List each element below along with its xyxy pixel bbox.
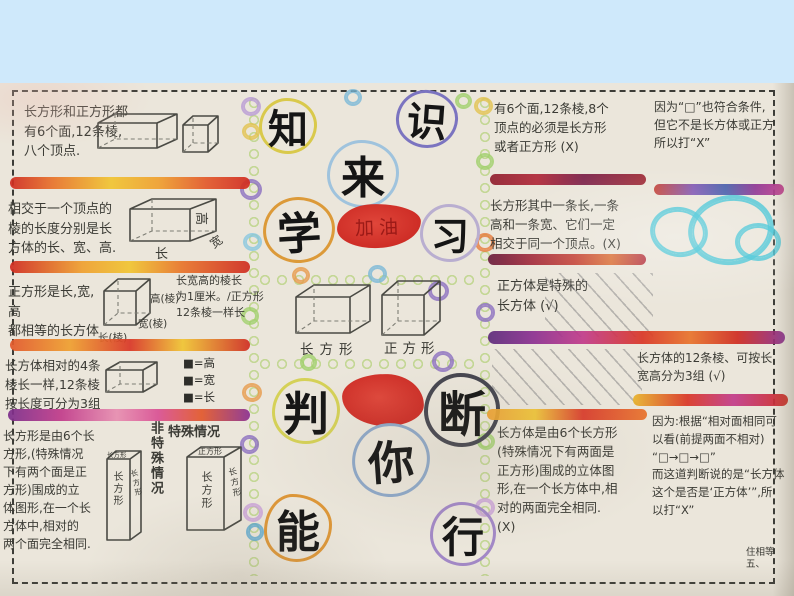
title-char-xing: 行 — [430, 502, 496, 566]
left-section2-text: 相交于一个顶点的 棱的长度分别是长 方体的长、宽、高. — [8, 200, 126, 259]
edge-label-length: 长 — [155, 243, 168, 262]
left-section3-text: 正方形是长,宽,高 都相等的长方体 — [8, 283, 104, 342]
judgment-4-text: 长方体的12条棱、可按长 宽高分为3组 (√) — [637, 349, 789, 385]
cube-edge-label-w: 宽(棱) — [138, 316, 167, 331]
crayon-divider — [633, 394, 788, 406]
crayon-divider — [8, 409, 250, 421]
scribble-decoration — [476, 153, 494, 170]
title-char-pan: 判 — [272, 378, 340, 444]
scribble-decoration — [241, 97, 261, 116]
title-char-lai: 来 — [327, 140, 399, 208]
poster-photo: 长方形和正方形都 有6个面,12条棱, 八个顶点. 相交于一个顶点的 棱的长度分… — [0, 83, 794, 596]
middle-box1-label: 长方形 — [300, 338, 359, 358]
crayon-divider — [488, 331, 785, 344]
face-label: 长方形 — [109, 471, 124, 507]
heading-non-special-case: 非特殊情况 — [146, 421, 165, 526]
slide: { "colors": { "slide_background": "#cfe9… — [0, 0, 794, 596]
edge-label-height: 高 — [193, 212, 212, 225]
judgment-2-text: 长方形其中一条长,一条 高和一条宽、它们一定 相交于同一个顶点。(X) — [490, 197, 652, 253]
scribble-decoration — [474, 97, 493, 115]
title-char-zhi: 知 — [259, 98, 317, 154]
crayon-divider — [10, 261, 250, 273]
corner-note: 住相等 五、 — [746, 547, 792, 572]
scribble-decoration — [455, 93, 472, 109]
scribble-decoration — [243, 233, 262, 251]
crayon-divider — [654, 184, 784, 195]
cuboid-sketch — [292, 281, 372, 337]
cube-sketch — [180, 113, 220, 155]
scribble-decoration — [242, 123, 260, 140]
crayon-divider — [10, 177, 250, 189]
crayon-divider — [488, 254, 646, 265]
pencil-hatching — [545, 273, 653, 337]
face-label: 长方形 — [198, 471, 214, 510]
scribble-decoration — [344, 89, 362, 106]
left-section4-text: 长方体相对的4条 棱长一样,12条棱 按长度可分为3组 — [5, 357, 107, 413]
pencil-hatching — [492, 349, 642, 405]
cuboid-sketch — [95, 111, 179, 151]
judgment-1-text: 有6个面,12条棱,8个 顶点的必须是长方形 或者正方形 (X) — [494, 100, 649, 156]
face-label: 正方形 — [198, 446, 222, 457]
face-label: 长方形 — [107, 449, 127, 459]
title-char-xi: 习 — [420, 204, 480, 262]
crayon-divider — [490, 174, 646, 185]
scribble-decoration — [243, 503, 263, 522]
judgment-5-text: 长方体是由6个长方形 (特殊情况下有两面是 正方形)围成的立体图 形,在一个长方… — [497, 424, 657, 537]
explanation-2-text: 因为:根据“相对面相同可 以看(前提两面不相对) “□→□→□” 而这道判断说的… — [652, 413, 792, 520]
left-section3-note: 长宽高的棱长 为1厘米。/正方形 12条棱一样长 — [176, 273, 264, 321]
cube-edge-label-h: 高(棱) — [150, 291, 179, 306]
legend-item-height: ■=高 — [183, 355, 215, 372]
middle-box2-label: 正方形 — [384, 337, 440, 357]
scribble-decoration — [476, 303, 495, 322]
edge-color-legend: ■=高 ■=宽 ■=长 — [183, 355, 215, 406]
crayon-divider — [487, 409, 647, 420]
legend-item-length: ■=长 — [183, 389, 215, 406]
scribble-decoration — [242, 383, 262, 402]
scribble-decoration — [246, 523, 264, 541]
cheer-text: 加油 — [355, 212, 404, 241]
left-section5-text: 长方形是由6个长 方形,(特殊情况 下有两个面是正 方形)围成的立 体图形,在一… — [3, 427, 97, 553]
crayon-divider — [10, 339, 250, 351]
legend-item-width: ■=宽 — [183, 372, 215, 389]
cube-sketch — [378, 277, 442, 337]
explanation-1-text: 因为“□”也符合条件, 但它不是长方体或正方 所以打“X” — [654, 98, 786, 152]
cyan-scribble-decoration — [735, 223, 781, 261]
heading-special-case: 特殊情况 — [168, 421, 220, 440]
cuboid-sketch — [103, 359, 159, 395]
